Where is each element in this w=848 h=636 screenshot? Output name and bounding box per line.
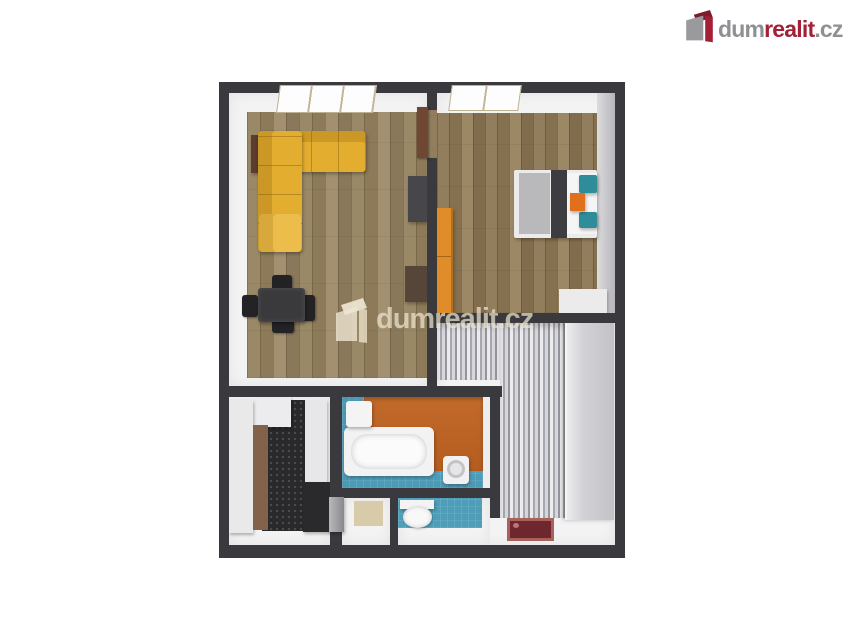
dining-chair — [242, 295, 258, 317]
wall-segment — [390, 498, 398, 545]
tv-cabinet — [408, 176, 427, 222]
doorway-opening — [427, 110, 437, 158]
closet-floor — [354, 501, 383, 526]
dumrealit-house-icon — [333, 295, 371, 345]
doormat — [507, 518, 554, 541]
brand-text-cz: .cz — [814, 16, 842, 42]
entry-wood-panel — [253, 425, 268, 530]
orange-bedside-table — [570, 193, 585, 211]
bed-duvet — [519, 173, 550, 234]
bathtub-basin — [351, 434, 427, 469]
wall-segment — [330, 488, 490, 498]
living-room-window — [276, 85, 377, 113]
brand-text: dumrealit.cz — [718, 13, 843, 45]
hallway-runner-floor — [500, 323, 565, 518]
floorplan-photo: dumrealit.cz dumrealit.cz — [0, 0, 848, 636]
teal-pillow — [579, 212, 597, 228]
wall-segment — [219, 82, 229, 558]
brand-text-dum: dum — [718, 16, 764, 42]
dumrealit-house-icon — [684, 9, 715, 47]
wall-segment — [219, 386, 502, 397]
wall-segment — [427, 82, 437, 110]
toilet-bowl — [403, 506, 432, 528]
washing-machine-drum — [447, 460, 465, 478]
bedroom-window — [448, 85, 522, 111]
bathtub — [344, 427, 434, 476]
bathroom-wall-face — [483, 397, 490, 488]
corner-sofa-chaise-end — [259, 214, 301, 252]
washbasin — [346, 401, 372, 427]
bed-runner — [551, 170, 567, 238]
watermark-text: dumrealit.cz — [376, 295, 533, 343]
brand-logo: dumrealit.cz — [684, 9, 843, 47]
hallway-wardrobe — [565, 323, 614, 520]
watermark: dumrealit.cz — [333, 295, 533, 345]
wall-segment — [427, 158, 437, 387]
wall-segment — [219, 545, 625, 558]
open-door — [417, 107, 428, 158]
fridge — [303, 482, 331, 532]
washing-machine — [443, 456, 469, 484]
entry-wardrobe — [229, 400, 253, 533]
brand-text-realit: realit — [764, 16, 814, 42]
white-dresser — [559, 289, 607, 315]
wall-segment — [490, 386, 500, 518]
waste-bin — [329, 497, 344, 532]
teal-pillow — [579, 175, 597, 193]
bedroom-wall-panel — [597, 93, 615, 313]
entry-counter-cabinet — [305, 400, 327, 485]
dining-table — [258, 288, 305, 322]
